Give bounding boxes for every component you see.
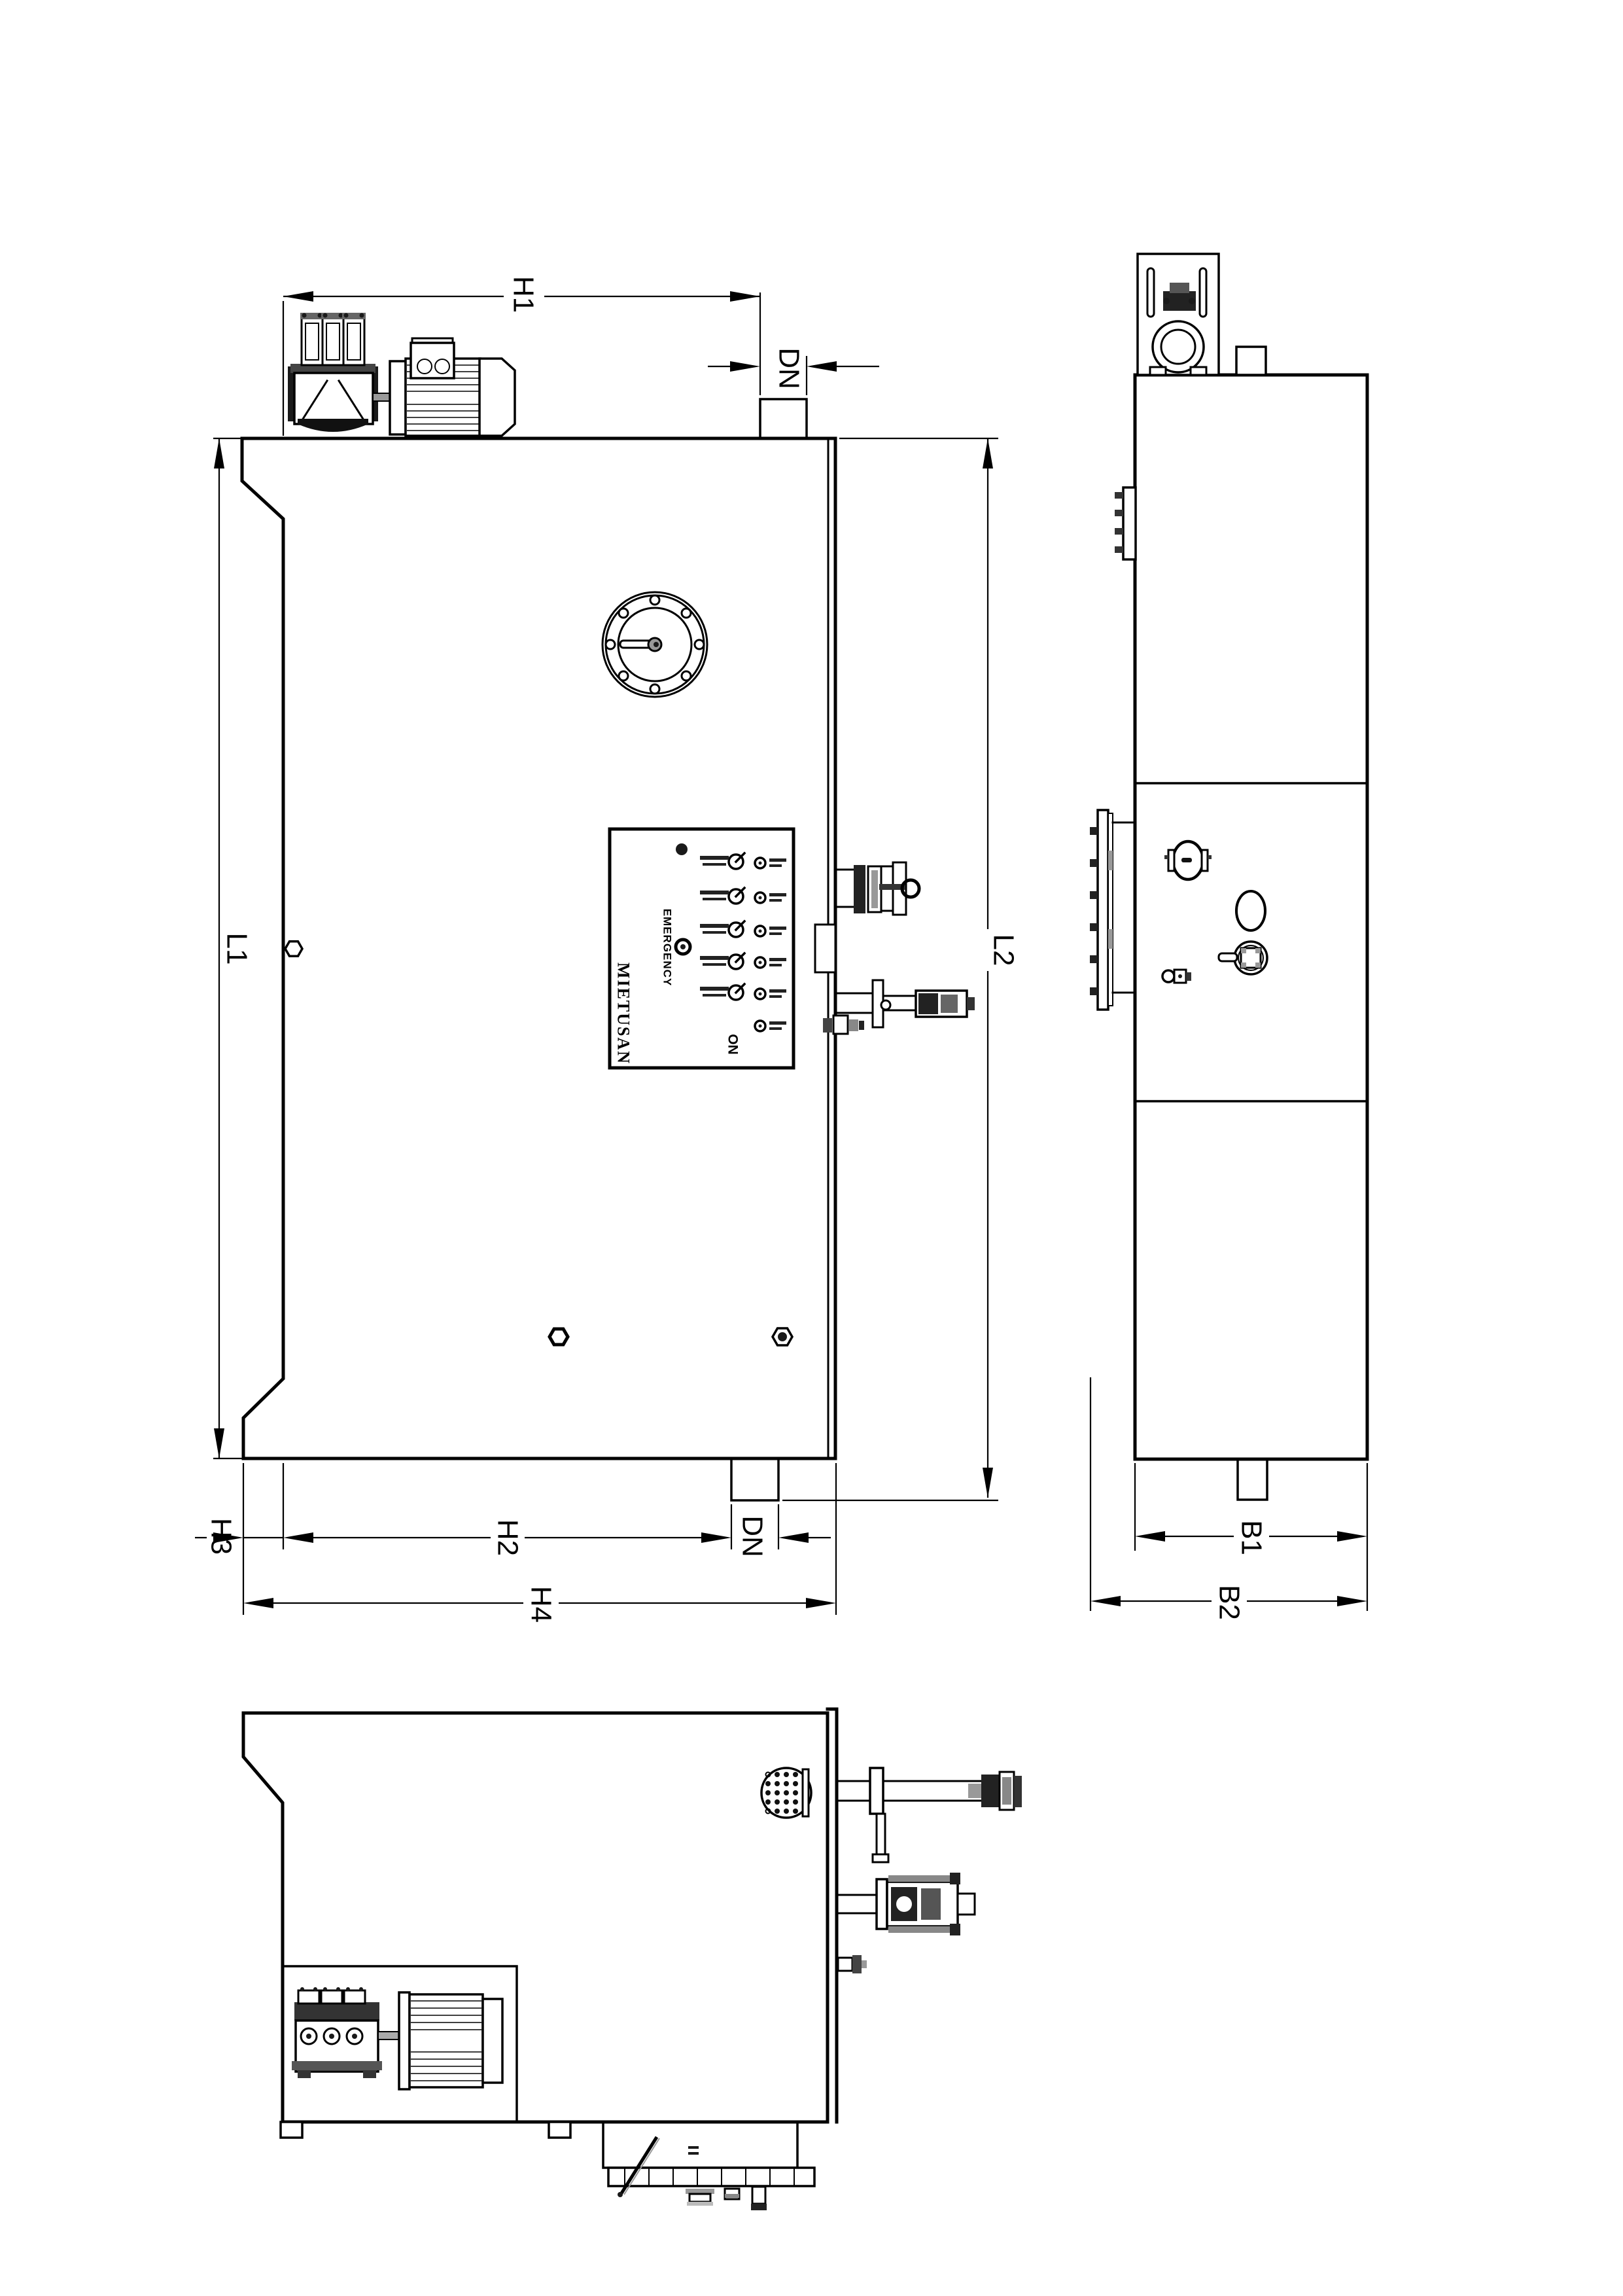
dim-label-l1: L1 bbox=[221, 933, 253, 965]
drawing-sheet: MIETUSAN EMERGENCY bbox=[0, 0, 1623, 2296]
exhaust-stub bbox=[1236, 347, 1266, 375]
power-lamp bbox=[676, 843, 688, 855]
pump-cylinder-1 bbox=[300, 313, 324, 365]
fan-cowl bbox=[480, 359, 515, 436]
dim-label-h1: H1 bbox=[508, 276, 540, 313]
emergency-stop-button[interactable] bbox=[676, 940, 690, 954]
dim-label-b1: B1 bbox=[1236, 1520, 1268, 1555]
feed-pump bbox=[288, 313, 378, 432]
junction-box bbox=[815, 925, 835, 972]
dim-label-dn-bottom: DN bbox=[737, 1515, 769, 1557]
foot-right bbox=[549, 2122, 570, 2138]
brand-logo: MIETUSAN bbox=[614, 963, 633, 1065]
burner-plate bbox=[761, 1768, 811, 1818]
coupling-shaft bbox=[373, 393, 391, 401]
control-panel: MIETUSAN EMERGENCY bbox=[610, 829, 794, 1068]
technical-drawing: MIETUSAN EMERGENCY bbox=[0, 0, 1623, 2296]
valve-handle bbox=[1219, 953, 1237, 961]
dim-label-b2: B2 bbox=[1213, 1585, 1246, 1620]
dim-label-h3: H3 bbox=[205, 1518, 237, 1555]
manhole bbox=[602, 592, 707, 697]
on-label: ON bbox=[725, 1034, 741, 1055]
foot-left bbox=[281, 2122, 302, 2138]
dim-label-dn-top: DN bbox=[773, 347, 805, 389]
coupling-shaft-bottom bbox=[378, 2032, 399, 2040]
drain-cock-end bbox=[1162, 970, 1191, 983]
end-view-body bbox=[1135, 375, 1367, 1459]
sheet-background bbox=[0, 0, 1623, 2296]
emergency-label: EMERGENCY bbox=[661, 909, 674, 987]
pump-cylinder-2 bbox=[321, 313, 345, 365]
terminal-box bbox=[411, 343, 454, 378]
dim-label-l2: L2 bbox=[988, 934, 1020, 966]
dim-label-h4: H4 bbox=[525, 1586, 557, 1623]
pump-cylinder-3 bbox=[342, 313, 366, 365]
dim-label-h2: H2 bbox=[492, 1519, 524, 1556]
motor-bottom-view bbox=[399, 1992, 502, 2089]
